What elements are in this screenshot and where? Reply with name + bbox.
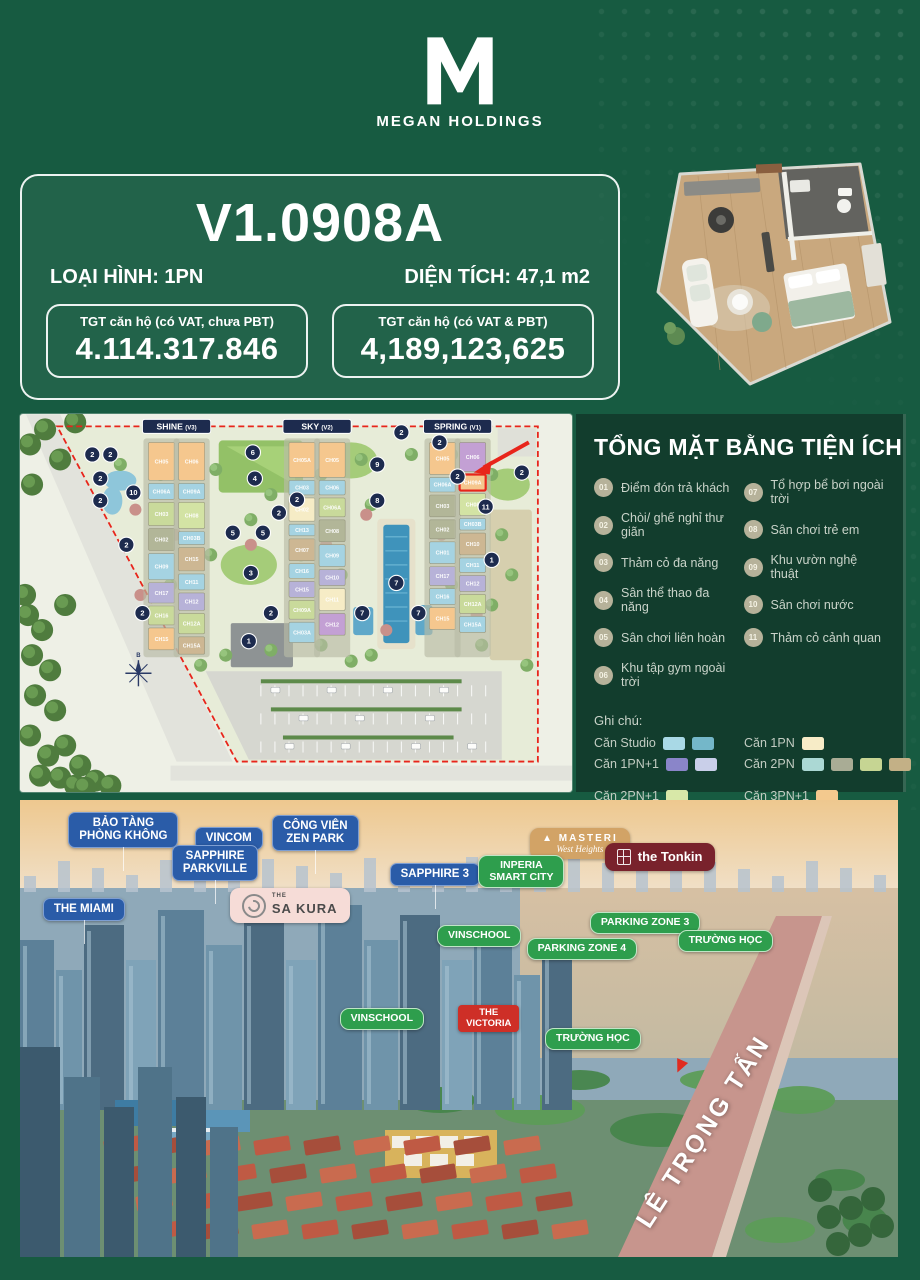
marker-number: 2 [277,508,281,517]
building-label: CH09A [183,489,201,495]
building-label: CH02 [295,508,309,514]
building-label: CH15 [185,557,199,563]
building-label: CH03 [295,486,309,492]
amenities-list: 01Điểm đón trả khách02Chòi/ ghế nghỉ thư… [594,478,887,703]
legend-item: Căn 1PN [744,736,911,750]
amenity-item: 02Chòi/ ghế nghỉ thư giãn [594,511,738,539]
tonkin-seal-icon [617,849,631,865]
amenity-number-badge: 04 [594,591,613,610]
marker-number: 2 [456,472,460,481]
building-label: CH03A [293,630,311,636]
building-label: CH12 [466,581,480,587]
aerial-location-photo: BẢO TÀNGPHÒNG KHÔNGVINCOMCÔNG VIÊNZEN PA… [20,800,898,1257]
color-swatch [889,758,911,771]
amenity-item: 07Tổ hợp bể bơi ngoài trời [744,478,888,506]
building-label: CH10 [466,542,480,548]
building-label: CH03B [183,536,201,542]
price-row: TGT căn hộ (có VAT, chưa PBT) 4.114.317.… [22,304,618,378]
amenity-label: Khu tập gym ngoài trời [621,661,738,689]
marker-number: 3 [249,569,253,578]
megan-holdings-logo-icon [417,34,503,106]
legend-title: Ghi chú: [594,713,887,728]
price-box-with-pbt: TGT căn hộ (có VAT & PBT) 4,189,123,625 [332,304,594,378]
color-swatch [692,737,714,750]
amenity-label: Khu vườn nghệ thuật [771,553,888,581]
aerial-label-parking-zone-4: PARKING ZONE 4 [527,938,637,960]
aerial-label-vinschool-2: VINSCHOOL [340,1008,424,1030]
marker-number: 7 [360,609,364,618]
marker-number: 2 [124,540,128,549]
building-label: CH06A [434,483,452,489]
legend-item: Căn 1PN+1 [594,757,744,771]
marker-number: 1 [490,555,494,564]
apartment-3d-floorplan [628,140,914,402]
building-label: CH08 [185,513,199,519]
building-label: CH15 [436,616,450,622]
amenities-title: TỔNG MẶT BẰNG TIỆN ÍCH [594,434,887,461]
building-label: CH17 [436,574,450,580]
building-label: CH05 [436,456,450,462]
aerial-label-the-tonkin: the Tonkin [605,843,715,871]
amenity-item: 08Sân chơi trẻ em [744,520,888,539]
aerial-label-the-sakura: THESA KURA [230,888,350,923]
building-label: CH01 [436,551,450,557]
building-label: CH10 [325,576,339,582]
building-label: CH09A [293,608,311,614]
amenity-number-badge: 02 [594,516,613,535]
building-label: CH09A [464,481,482,487]
building-label: CH06A [153,489,171,495]
building-label: CH11 [466,563,480,569]
building-label: CH02 [436,527,450,533]
building-label: CH06A [323,505,341,511]
unit-meta-row: LOẠI HÌNH: 1PN DIỆN TÍCH: 47,1 m2 [22,266,618,289]
amenity-label: Thảm cỏ cảnh quan [771,631,882,645]
aerial-label-the-victoria: THEVICTORIA [458,1005,519,1032]
amenity-item: 06Khu tập gym ngoài trời [594,661,738,689]
building-label: CH05 [325,458,339,464]
aerial-label-cong-vien-zen-park: CÔNG VIÊNZEN PARK [272,815,359,851]
amenity-label: Sân chơi trẻ em [771,523,860,537]
price-value: 4,189,123,625 [340,331,586,367]
marker-number: 5 [261,528,265,537]
brand-header: MEGAN HOLDINGS [0,34,920,130]
building-label: CH15A [183,644,201,650]
amenity-label: Sân thể thao đa năng [621,586,738,614]
building-label: CH09 [325,554,339,560]
building-label: CH16 [295,569,309,575]
price-label: TGT căn hộ (có VAT, chưa PBT) [54,314,300,329]
amenity-number-badge: 07 [744,483,763,502]
building-label: CH09 [155,565,169,571]
building-label: CH03B [464,522,482,528]
amenity-item: 04Sân thể thao đa năng [594,586,738,614]
marker-number: 9 [375,460,379,469]
building-label: CH12A [183,622,201,628]
amenity-number-badge: 06 [594,666,613,685]
amenity-item: 05Sân chơi liên hoàn [594,628,738,647]
marker-number: 2 [295,495,299,504]
marker-number: 10 [129,488,137,497]
color-swatch [860,758,882,771]
marker-number: 8 [375,496,379,505]
legend-label: Căn 1PN+1 [594,757,659,771]
aerial-label-inperia-smart-city: INPERIASMART CITY [478,855,564,889]
building-label: CH15 [295,587,309,593]
unit-type-label: LOẠI HÌNH: 1PN [50,266,203,289]
aerial-label-vinschool-1: VINSCHOOL [437,925,521,947]
amenity-label: Sân chơi nước [771,598,854,612]
unit-area-label: DIỆN TÍCH: 47,1 m2 [404,266,590,289]
building-label: CH17 [155,591,169,597]
building-label: CH16 [155,613,169,619]
building-label: CH02 [155,538,169,544]
legend-label: Căn 1PN [744,736,795,750]
color-swatch [802,758,824,771]
color-swatch [695,758,717,771]
svg-text:B: B [136,653,141,659]
amenity-number-badge: 10 [744,595,763,614]
color-swatch [666,758,688,771]
aerial-label-truong-hoc-2: TRƯỜNG HỌC [545,1028,641,1050]
amenity-label: Điểm đón trả khách [621,481,729,495]
color-swatch [663,737,685,750]
unit-info-card: V1.0908A LOẠI HÌNH: 1PN DIỆN TÍCH: 47,1 … [20,174,620,400]
building-label: CH06 [185,459,199,465]
amenity-label: Sân chơi liên hoàn [621,631,725,645]
marker-number: 2 [98,474,102,483]
amenity-label: Tổ hợp bể bơi ngoài trời [771,478,888,506]
marker-number: 2 [140,609,144,618]
amenity-label: Thảm cỏ đa năng [621,556,718,570]
aerial-label-truong-hoc-1: TRƯỜNG HỌC [678,930,774,952]
amenity-number-badge: 01 [594,478,613,497]
building-label: CH03 [155,512,169,518]
building-label: CH15 [155,637,169,643]
marker-number: 2 [108,450,112,459]
building-label: CH12 [185,600,199,606]
amenity-number-badge: 09 [744,558,763,577]
floorplan-render [658,164,890,384]
amenity-item: 10Sân chơi nước [744,595,888,614]
marker-number: 7 [416,609,420,618]
aerial-label-sapphire-3: SAPPHIRE 3 [390,863,480,886]
color-swatch [831,758,853,771]
building-label: CH08 [466,502,480,508]
building-label: CH05A [293,458,311,464]
marker-number: 5 [231,528,235,537]
building-label: CH11 [325,597,339,603]
marker-number: 6 [251,448,255,457]
price-label: TGT căn hộ (có VAT & PBT) [340,314,586,329]
price-box-no-pbt: TGT căn hộ (có VAT, chưa PBT) 4.114.317.… [46,304,308,378]
building-label: CH03 [436,504,450,510]
marker-number: 2 [399,428,403,437]
site-masterplan-map: B CH05CH06ACH03CH02CH09CH17CH16CH15CH06C… [20,414,572,792]
flyer-page: MEGAN HOLDINGS V1.0908A LOẠI HÌNH: 1PN D… [0,0,920,1280]
marker-number: 2 [98,496,102,505]
aerial-label-the-miami: THE MIAMI [43,898,125,921]
building-label: CH05 [155,459,169,465]
building-label: CH11 [185,580,199,586]
marker-number: 2 [90,450,94,459]
amenity-item: 03Thảm cỏ đa năng [594,553,738,572]
marker-number: 11 [482,502,490,511]
amenity-number-badge: 08 [744,520,763,539]
building-label: CH08 [325,529,339,535]
marker-number: 7 [394,579,398,588]
amenity-label: Chòi/ ghế nghỉ thư giãn [621,511,738,539]
building-label: CH07 [295,548,309,554]
building-label: CH13 [295,528,309,534]
marker-number: 2 [437,438,441,447]
marker-number: 2 [269,609,273,618]
building-label: CH06 [466,455,480,461]
legend-item: Căn Studio [594,736,744,750]
legend-item: Căn 2PN [744,757,911,771]
price-value: 4.114.317.846 [54,331,300,367]
aerial-label-layer: BẢO TÀNGPHÒNG KHÔNGVINCOMCÔNG VIÊNZEN PA… [20,800,898,1257]
amenity-item: 01Điểm đón trả khách [594,478,738,497]
amenity-number-badge: 11 [744,628,763,647]
amenity-number-badge: 03 [594,553,613,572]
sakura-logo-icon [242,894,266,918]
legend-label: Căn 2PN [744,757,795,771]
amenity-number-badge: 05 [594,628,613,647]
building-label: CH12 [325,622,339,628]
marker-number: 1 [247,637,251,646]
aerial-label-bao-tang-phong-khong: BẢO TÀNGPHÒNG KHÔNG [68,812,178,848]
building-label: CH12A [464,602,482,608]
unit-code: V1.0908A [22,192,618,254]
amenities-panel: TỔNG MẶT BẰNG TIỆN ÍCH 01Điểm đón trả kh… [576,414,906,792]
marker-number: 2 [520,468,524,477]
brand-name: MEGAN HOLDINGS [0,113,920,130]
aerial-label-sapphire-parkville: SAPPHIREPARKVILLE [172,845,258,881]
building-label: CH06 [325,486,339,492]
building-label: CH16 [436,595,450,601]
color-swatch [802,737,824,750]
amenity-item: 11Thảm cỏ cảnh quan [744,628,888,647]
legend-label: Căn Studio [594,736,656,750]
amenity-item: 09Khu vườn nghệ thuật [744,553,888,581]
building-label: CH15A [464,622,482,628]
